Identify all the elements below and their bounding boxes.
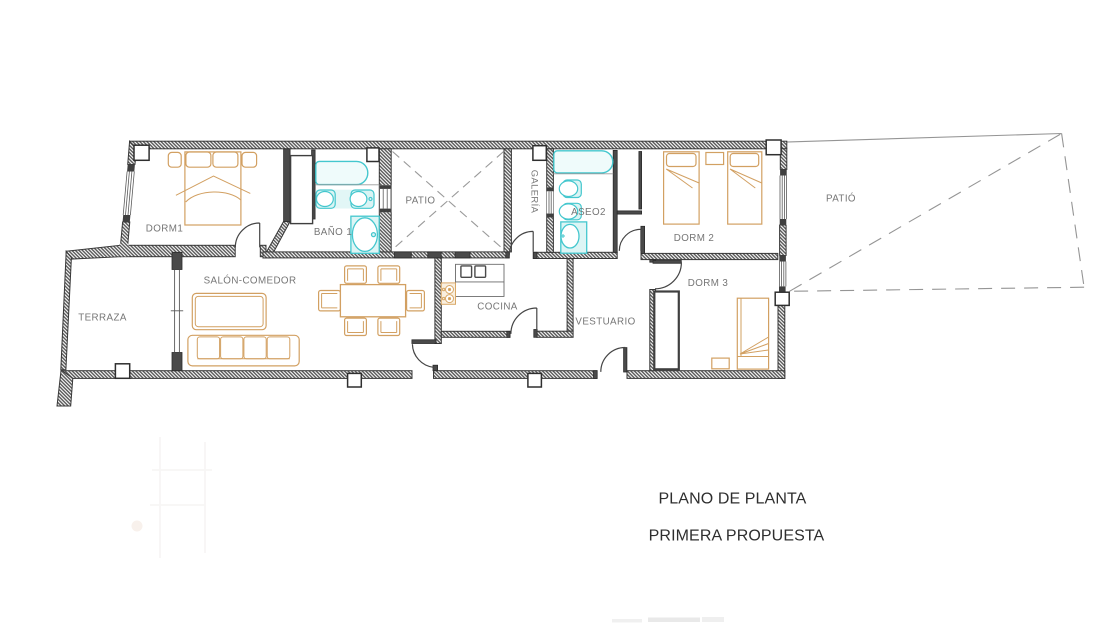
svg-text:VESTUARIO: VESTUARIO (575, 317, 635, 328)
svg-text:PATIO: PATIO (406, 196, 436, 207)
svg-text:SALÓN-COMEDOR: SALÓN-COMEDOR (204, 276, 297, 287)
svg-text:PRIMERA PROPUESTA: PRIMERA PROPUESTA (649, 528, 825, 545)
svg-text:PLANO DE PLANTA: PLANO DE PLANTA (659, 491, 807, 508)
svg-text:BAÑO 1: BAÑO 1 (314, 227, 352, 238)
svg-text:TERRAZA: TERRAZA (78, 313, 127, 324)
svg-text:GALERÍA: GALERÍA (530, 170, 541, 214)
svg-text:DORM 3: DORM 3 (688, 278, 729, 289)
svg-text:DORM1: DORM1 (146, 224, 183, 235)
svg-text:COCINA: COCINA (477, 302, 518, 313)
svg-text:ASEO2: ASEO2 (571, 207, 606, 218)
svg-text:DORM 2: DORM 2 (674, 233, 715, 244)
svg-text:PATIÓ: PATIÓ (826, 194, 856, 205)
